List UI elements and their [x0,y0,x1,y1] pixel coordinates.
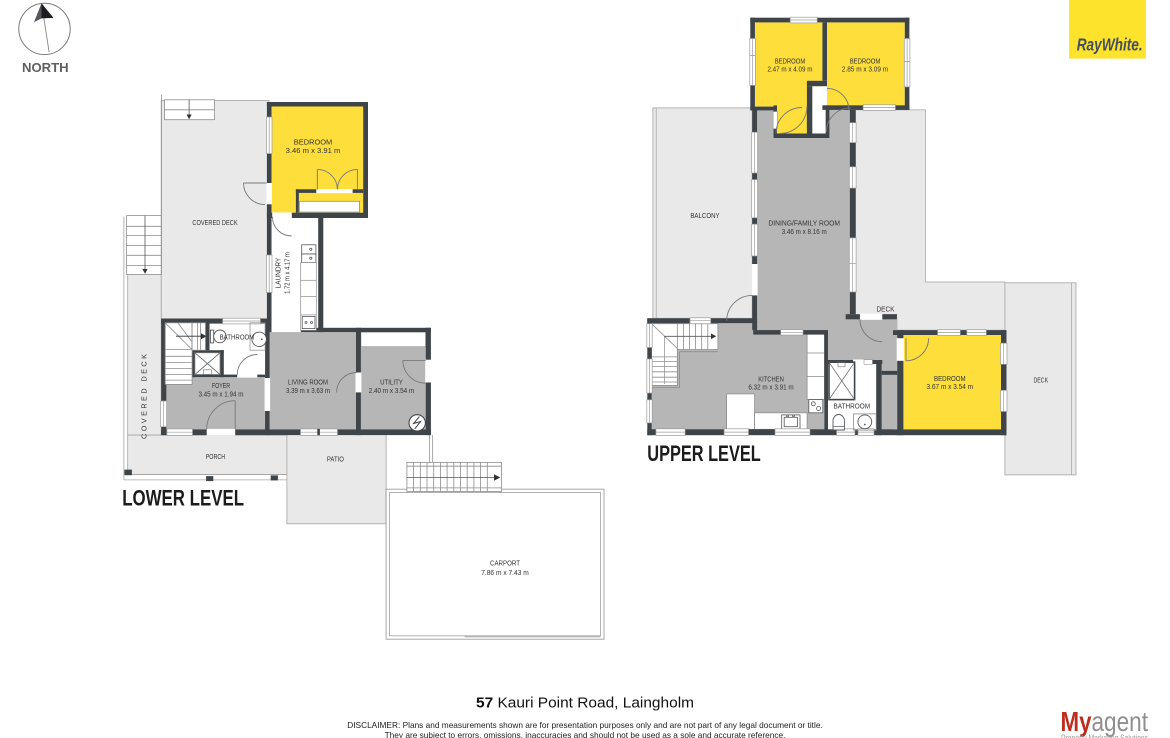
svg-text:DECK: DECK [877,305,895,314]
svg-text:LOWER LEVEL: LOWER LEVEL [122,485,244,510]
svg-text:DISCLAIMER: Plans and measurem: DISCLAIMER: Plans and measurements shown… [347,720,822,730]
svg-text:2.40 m x 3.54 m: 2.40 m x 3.54 m [369,386,415,395]
svg-text:RayWhite.: RayWhite. [1077,34,1143,54]
svg-text:DECK: DECK [1034,376,1049,385]
svg-text:1.72 m x 4.17 m: 1.72 m x 4.17 m [283,252,292,294]
svg-text:CARPORT: CARPORT [490,559,520,568]
svg-text:Property Marketing Solutions: Property Marketing Solutions [1061,733,1148,738]
svg-text:3.45 m x 1.94 m: 3.45 m x 1.94 m [198,390,243,399]
svg-text:PATIO: PATIO [327,454,344,463]
svg-text:3.67 m x 3.54 m: 3.67 m x 3.54 m [927,382,974,391]
svg-text:3.46 m x 3.91 m: 3.46 m x 3.91 m [286,146,341,155]
svg-text:NORTH: NORTH [22,61,69,75]
svg-text:3.39 m x 3.63 m: 3.39 m x 3.63 m [286,386,330,395]
svg-text:BALCONY: BALCONY [690,211,719,220]
svg-text:COVERED DECK: COVERED DECK [140,354,149,439]
svg-text:They are subject to errors, om: They are subject to errors, omissions, i… [385,730,786,738]
svg-text:LAUNDRY: LAUNDRY [274,258,283,289]
svg-text:6.32 m x 3.91 m: 6.32 m x 3.91 m [748,382,793,391]
svg-text:PORCH: PORCH [206,452,225,461]
svg-text:COVERED DECK: COVERED DECK [192,218,237,227]
svg-text:57 Kauri Point Road, Laingholm: 57 Kauri Point Road, Laingholm [476,696,694,712]
svg-text:2.85 m x 3.09 m: 2.85 m x 3.09 m [842,64,888,73]
svg-text:3.46 m x 8.16 m: 3.46 m x 8.16 m [782,227,827,236]
svg-text:BATHROOM: BATHROOM [220,332,255,341]
svg-text:BATHROOM: BATHROOM [834,402,871,411]
svg-text:UPPER LEVEL: UPPER LEVEL [647,441,761,466]
svg-text:7.86 m x 7.43 m: 7.86 m x 7.43 m [481,568,529,577]
svg-text:2.47 m x 4.09 m: 2.47 m x 4.09 m [767,64,812,73]
